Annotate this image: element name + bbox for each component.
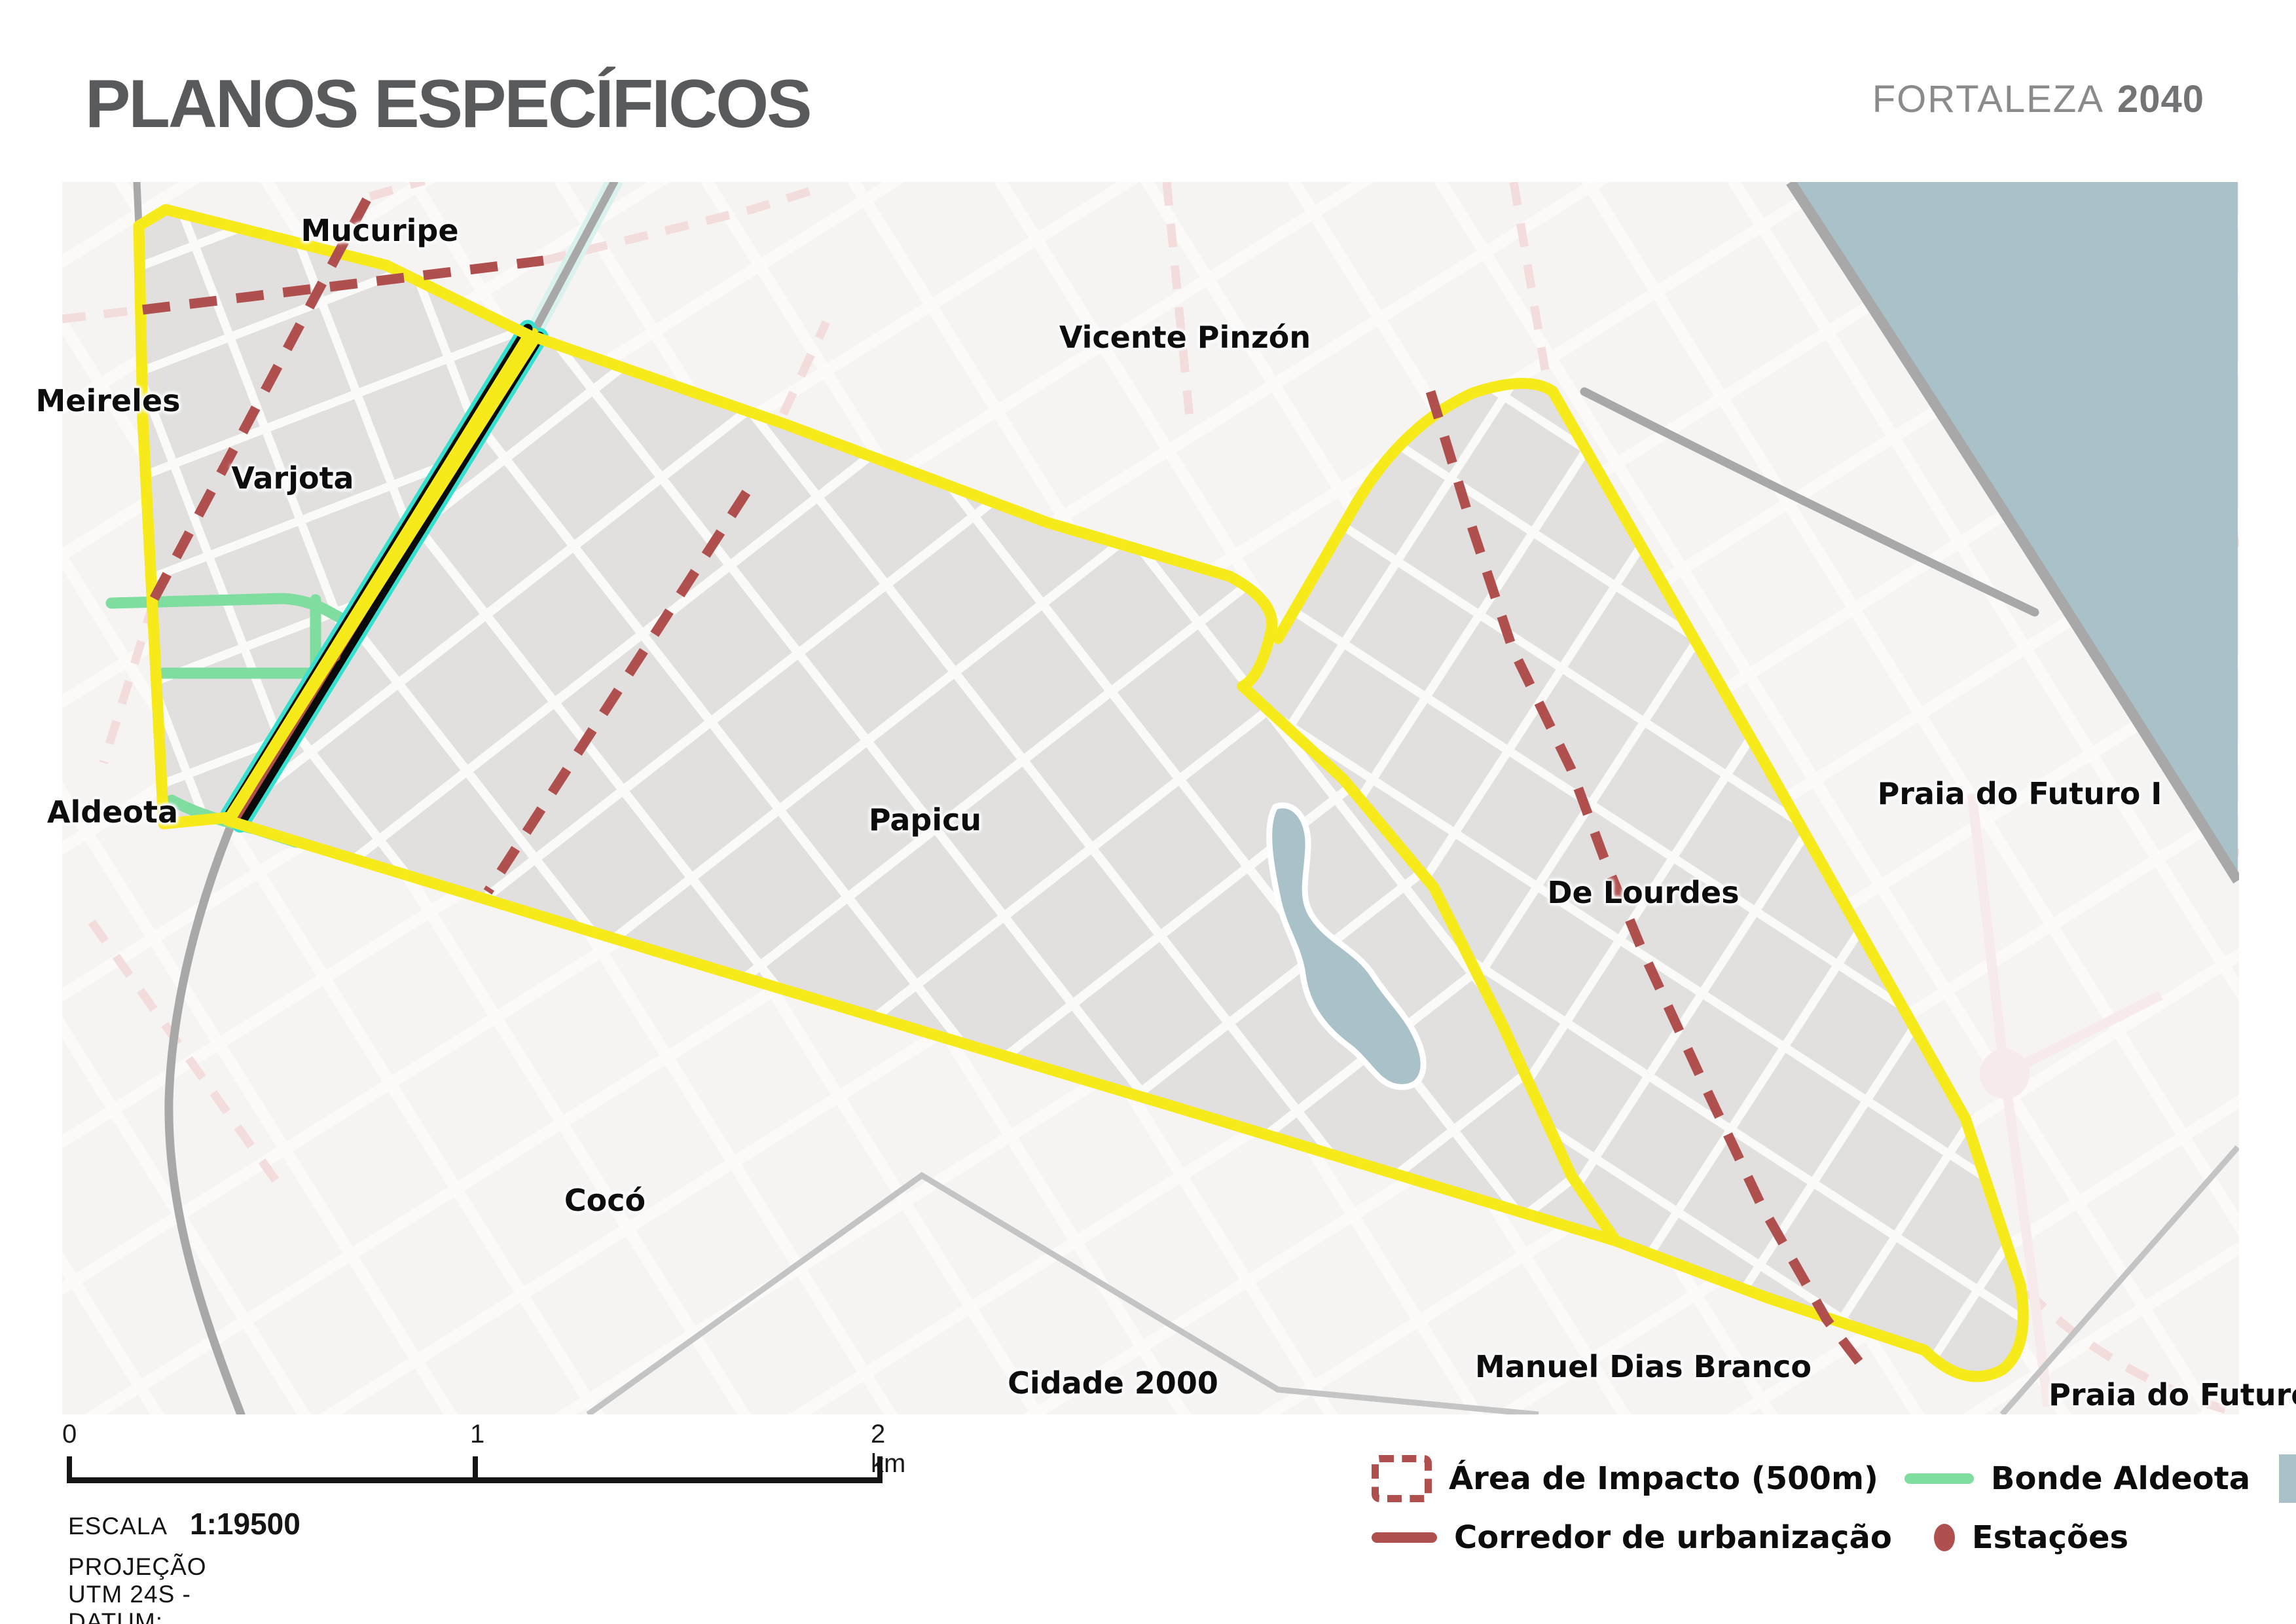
map-svg [0,0,2296,1624]
legend-row-1: Área de Impacto (500m) Bonde Aldeota Lag… [1372,1452,2296,1505]
legend-label-corredor: Corredor de urbanização [1454,1519,1892,1556]
scalebar-number-2: 2 km [871,1420,905,1479]
impact-area-swatch-icon [1372,1455,1432,1502]
planos-especificos-sheet: PLANOS ESPECÍFICOS FORTALEZA 2040 [0,0,2296,1624]
pink-road-node [1980,1049,2030,1099]
scalebar-bar [67,1477,883,1483]
scalebar-number-0: 0 [62,1420,77,1449]
escala-label: ESCALA [68,1513,168,1540]
estacoes-swatch-icon [1934,1524,1955,1551]
legend-row-2: Corredor de urbanização Estações [1372,1511,2128,1564]
bonde-aldeota-swatch-icon [1904,1473,1974,1484]
map-canvas: MucuripeMeirelesVarjotaVicente PinzónPap… [0,0,2296,1624]
legend-label-estacoes: Estações [1972,1519,2128,1556]
projection-note: PROJEÇÃO UTM 24S - DATUM: SIRGAS 2000 [68,1553,207,1624]
legend-label-bonde-aldeota: Bonde Aldeota [1991,1460,2250,1497]
escala-value: 1:19500 [190,1506,301,1541]
scalebar-number-1: 1 [470,1420,484,1449]
lagoas-swatch-icon [2279,1454,2296,1503]
corredor-swatch-icon [1372,1532,1437,1543]
legend-label-area-impacto: Área de Impacto (500m) [1449,1460,1878,1497]
escala-line: ESCALA 1:19500 [68,1506,301,1541]
